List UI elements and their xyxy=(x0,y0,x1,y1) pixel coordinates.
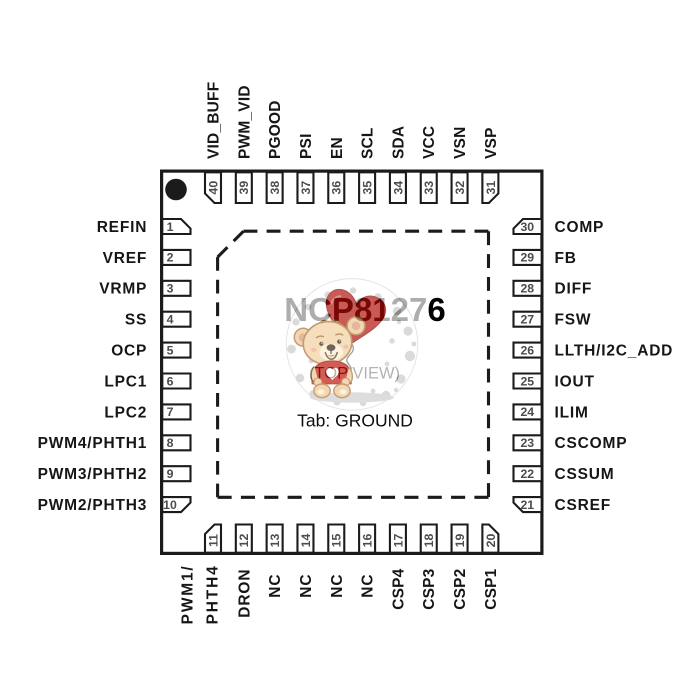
svg-text:27: 27 xyxy=(520,313,534,327)
svg-text:PWM3/PHTH2: PWM3/PHTH2 xyxy=(38,466,148,483)
svg-text:NC: NC xyxy=(329,574,346,598)
svg-text:20: 20 xyxy=(484,534,498,548)
svg-text:DRON: DRON xyxy=(236,569,253,618)
svg-text:CSSUM: CSSUM xyxy=(555,466,615,483)
svg-text:CSP3: CSP3 xyxy=(421,568,438,609)
svg-text:PHTH4: PHTH4 xyxy=(205,565,222,625)
svg-text:PWM4/PHTH1: PWM4/PHTH1 xyxy=(38,435,148,452)
svg-text:FB: FB xyxy=(555,250,577,267)
svg-text:1: 1 xyxy=(167,220,174,234)
svg-text:19: 19 xyxy=(453,534,467,548)
svg-text:24: 24 xyxy=(520,405,534,419)
svg-text:29: 29 xyxy=(520,251,534,265)
svg-text:PWM_VID: PWM_VID xyxy=(236,85,253,159)
svg-text:31: 31 xyxy=(484,181,498,195)
svg-text:SS: SS xyxy=(125,312,147,329)
svg-text:39: 39 xyxy=(237,181,251,195)
svg-text:VCC: VCC xyxy=(421,126,438,159)
svg-text:3: 3 xyxy=(167,282,174,296)
svg-text:DIFF: DIFF xyxy=(555,281,593,298)
svg-text:NC: NC xyxy=(298,574,315,598)
svg-text:37: 37 xyxy=(299,181,313,195)
svg-text:PWM1/: PWM1/ xyxy=(180,565,197,625)
svg-text:2: 2 xyxy=(167,251,174,265)
svg-text:FSW: FSW xyxy=(555,312,592,329)
svg-text:30: 30 xyxy=(520,220,534,234)
svg-text:34: 34 xyxy=(391,181,405,195)
svg-text:CSCOMP: CSCOMP xyxy=(555,435,628,452)
svg-text:12: 12 xyxy=(237,534,251,548)
svg-text:28: 28 xyxy=(520,282,534,296)
svg-text:PWM2/PHTH3: PWM2/PHTH3 xyxy=(38,497,148,514)
svg-text:ILIM: ILIM xyxy=(555,404,589,421)
svg-text:VSN: VSN xyxy=(452,127,469,159)
svg-text:Tab: GROUND: Tab: GROUND xyxy=(297,411,413,431)
svg-text:13: 13 xyxy=(268,534,282,548)
svg-text:LPC1: LPC1 xyxy=(104,373,147,390)
svg-text:5: 5 xyxy=(167,343,174,357)
svg-text:IOUT: IOUT xyxy=(555,373,595,390)
svg-text:VREF: VREF xyxy=(103,250,148,267)
svg-text:21: 21 xyxy=(520,498,534,512)
svg-text:VSP: VSP xyxy=(483,127,500,159)
svg-text:REFIN: REFIN xyxy=(97,219,148,236)
svg-text:22: 22 xyxy=(520,467,534,481)
svg-text:NC: NC xyxy=(267,574,284,598)
svg-text:OCP: OCP xyxy=(111,343,147,360)
svg-text:17: 17 xyxy=(391,534,405,548)
svg-text:23: 23 xyxy=(520,436,534,450)
svg-text:11: 11 xyxy=(206,534,220,547)
svg-text:14: 14 xyxy=(299,534,313,548)
svg-text:15: 15 xyxy=(330,534,344,548)
svg-text:PGOOD: PGOOD xyxy=(267,100,284,159)
svg-text:26: 26 xyxy=(520,343,534,357)
svg-text:33: 33 xyxy=(422,181,436,195)
svg-text:9: 9 xyxy=(167,467,174,481)
svg-text:EN: EN xyxy=(329,137,346,159)
svg-text:40: 40 xyxy=(206,181,220,195)
svg-text:SDA: SDA xyxy=(390,126,407,159)
svg-text:36: 36 xyxy=(330,181,344,195)
svg-text:18: 18 xyxy=(422,534,436,548)
svg-text:25: 25 xyxy=(520,374,534,388)
svg-text:COMP: COMP xyxy=(555,219,605,236)
svg-text:NC: NC xyxy=(360,574,377,598)
svg-text:CSP2: CSP2 xyxy=(452,569,469,610)
svg-text:16: 16 xyxy=(361,534,375,548)
svg-text:10: 10 xyxy=(163,498,177,512)
svg-text:LPC2: LPC2 xyxy=(104,404,147,421)
svg-text:CSP1: CSP1 xyxy=(483,568,500,609)
svg-text:LLTH/I2C_ADD: LLTH/I2C_ADD xyxy=(555,343,674,360)
svg-text:38: 38 xyxy=(268,181,282,195)
svg-text:VRMP: VRMP xyxy=(99,281,147,298)
svg-text:CSREF: CSREF xyxy=(555,497,612,514)
svg-text:CSP4: CSP4 xyxy=(390,568,407,609)
svg-text:7: 7 xyxy=(167,405,174,419)
svg-text:PSI: PSI xyxy=(298,133,315,159)
svg-text:35: 35 xyxy=(361,181,375,195)
svg-text:4: 4 xyxy=(167,313,174,327)
svg-text:VID_BUFF: VID_BUFF xyxy=(206,82,223,159)
svg-text:8: 8 xyxy=(167,436,174,450)
svg-text:6: 6 xyxy=(167,374,174,388)
svg-text:32: 32 xyxy=(453,181,467,195)
svg-text:SCL: SCL xyxy=(360,127,377,159)
